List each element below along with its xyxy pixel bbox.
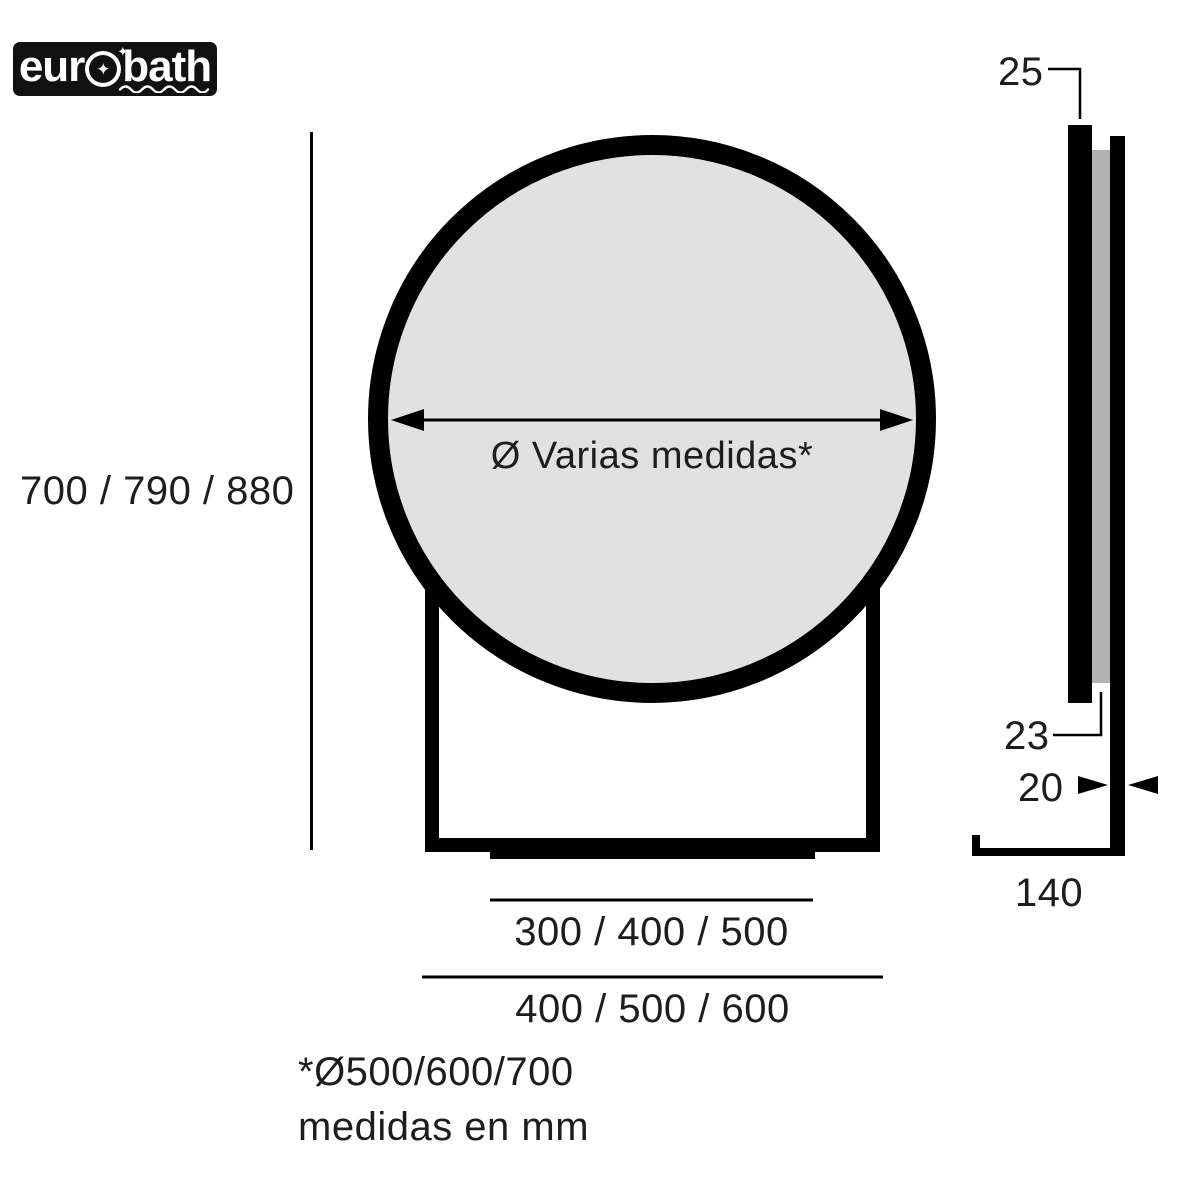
wave-underline-icon [119,85,209,93]
logo-o-star-icon: ✦ ✦ [85,51,121,87]
spec-sheet: eur ✦ ✦ bath 700 / 790 / 880 Ø Varias me… [0,0,1200,1200]
outer-width-dimension-label: 400 / 500 / 600 [422,987,883,1031]
units-footnote: medidas en mm [298,1105,589,1149]
diameter-options-footnote: *Ø500/600/700 [298,1050,574,1094]
base-depth-label: 140 [1009,871,1089,915]
side-mirror-bar [1068,125,1092,703]
profile-thickness-label: 20 [1018,766,1064,810]
backplate-thickness-label: 23 [1004,714,1050,758]
gap-arrow-left-icon [1078,776,1108,794]
leader-line-25 [1048,69,1080,119]
diameter-dimension-label: Ø Varias medidas* [452,436,852,478]
gap-arrow-right-icon [1128,776,1158,794]
eurobath-logo: eur ✦ ✦ bath [13,42,217,96]
stand-base-plate [490,852,815,859]
side-backplate-bar [1092,150,1110,683]
height-dimension-label: 700 / 790 / 880 [20,469,290,513]
logo-text-eur: eur [19,42,84,92]
mirror-thickness-label: 25 [998,50,1044,94]
inner-width-dimension-label: 300 / 400 / 500 [490,910,813,954]
side-wall-profile-bar [1110,136,1125,856]
side-floor-bracket [972,835,1125,856]
